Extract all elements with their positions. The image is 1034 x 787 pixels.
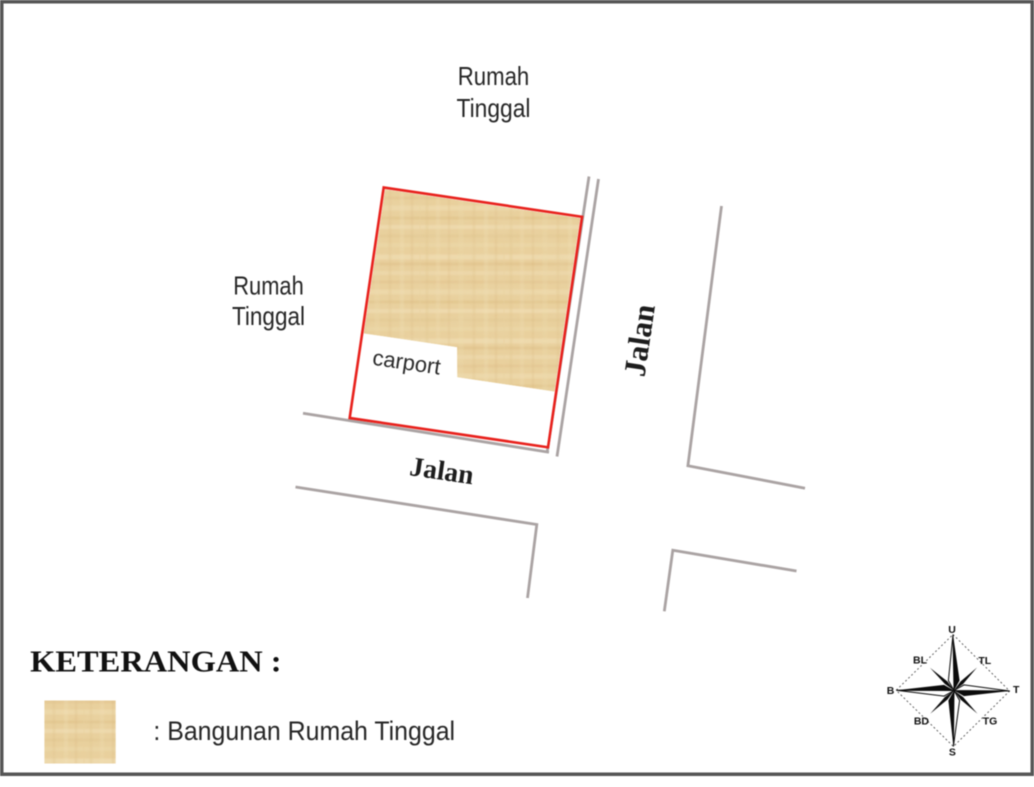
svg-text:BL: BL: [913, 654, 928, 666]
svg-text:Tinggal: Tinggal: [457, 93, 531, 123]
svg-text:Rumah: Rumah: [458, 61, 530, 91]
svg-text:Jalan: Jalan: [617, 302, 662, 379]
svg-text:KETERANGAN :: KETERANGAN :: [30, 645, 281, 679]
svg-text:: Bangunan Rumah Tinggal: : Bangunan Rumah Tinggal: [153, 716, 455, 746]
svg-text:BD: BD: [914, 716, 930, 728]
svg-text:TL: TL: [978, 655, 991, 667]
svg-text:TG: TG: [983, 716, 998, 728]
svg-text:Tinggal: Tinggal: [232, 301, 305, 331]
svg-text:T: T: [1013, 684, 1020, 696]
svg-text:B: B: [887, 685, 895, 697]
svg-text:Rumah: Rumah: [233, 270, 304, 300]
svg-text:S: S: [949, 747, 956, 759]
svg-text:U: U: [948, 624, 956, 636]
svg-text:Jalan: Jalan: [408, 450, 476, 490]
